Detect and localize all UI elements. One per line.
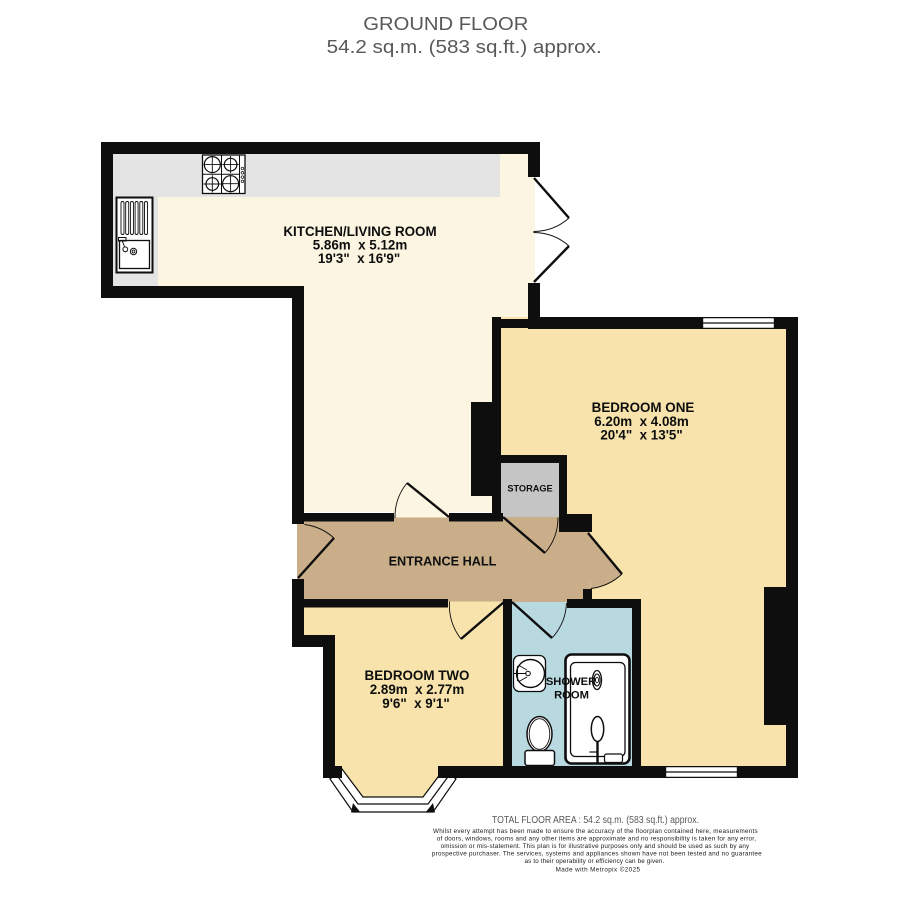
svg-text:ROOM: ROOM (554, 690, 589, 702)
svg-text:GROUND FLOOR: GROUND FLOOR (363, 13, 528, 34)
svg-text:prospective purchaser. The ser: prospective purchaser. The services, sys… (432, 851, 762, 858)
svg-text:Whilst every attempt has been: Whilst every attempt has been made to en… (433, 828, 758, 835)
svg-text:ENTRANCE HALL: ENTRANCE HALL (389, 555, 497, 569)
svg-text:BEDROOM TWO: BEDROOM TWO (365, 668, 470, 683)
svg-text:BEDROOM ONE: BEDROOM ONE (592, 400, 695, 415)
svg-text:54.2 sq.m. (583 sq.ft.) approx: 54.2 sq.m. (583 sq.ft.) approx. (327, 36, 602, 57)
svg-text:STORAGE: STORAGE (507, 484, 552, 494)
svg-text:19'3" x 16'9": 19'3" x 16'9" (318, 251, 400, 266)
svg-text:20'4" x 13'5": 20'4" x 13'5" (600, 428, 682, 443)
svg-text:omission or mis-statement. Thi: omission or mis-statement. This plan is … (441, 843, 750, 850)
svg-text:TOTAL FLOOR AREA : 54.2 sq.m.: TOTAL FLOOR AREA : 54.2 sq.m. (583 sq.ft… (492, 815, 699, 826)
svg-text:9'6" x 9'1": 9'6" x 9'1" (382, 696, 449, 711)
svg-text:Made with Metropix ©2025: Made with Metropix ©2025 (556, 866, 641, 874)
svg-text:as to their operability or eff: as to their operability or efficiency ca… (525, 858, 665, 865)
svg-text:2.89m x 2.77m: 2.89m x 2.77m (370, 682, 465, 697)
svg-text:SHOWER: SHOWER (546, 676, 596, 688)
svg-text:of doors, windows, rooms and a: of doors, windows, rooms and any other i… (437, 836, 756, 843)
